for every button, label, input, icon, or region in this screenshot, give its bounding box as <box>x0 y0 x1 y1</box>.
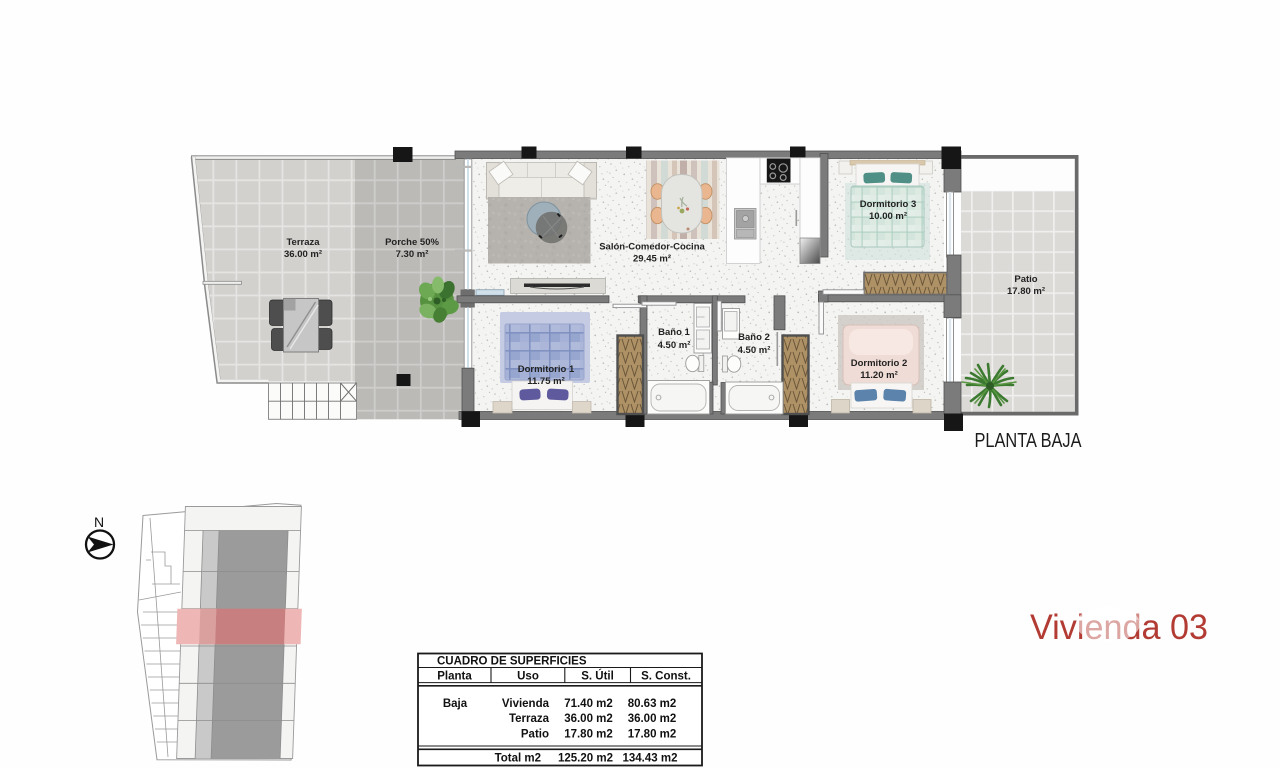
svg-text:Baja: Baja <box>443 698 468 710</box>
svg-text:11.75 m²: 11.75 m² <box>527 376 565 387</box>
svg-text:Baño 1: Baño 1 <box>658 327 690 338</box>
svg-text:Planta: Planta <box>437 671 472 683</box>
svg-text:PLANTA BAJA: PLANTA BAJA <box>975 429 1082 452</box>
svg-text:Salón-Comedor-Cocina: Salón-Comedor-Cocina <box>599 242 705 253</box>
svg-text:4.50 m²: 4.50 m² <box>738 345 771 356</box>
svg-text:11.20 m²: 11.20 m² <box>860 370 898 381</box>
svg-text:Dormitorio 1: Dormitorio 1 <box>518 364 575 375</box>
svg-text:17.80 m2: 17.80 m2 <box>564 729 613 741</box>
svg-text:134.43 m2: 134.43 m2 <box>623 753 678 765</box>
svg-text:CUADRO DE SUPERFICIES: CUADRO DE SUPERFICIES <box>437 656 587 668</box>
svg-text:Porche 50%: Porche 50% <box>385 237 439 248</box>
svg-text:36.00 m²: 36.00 m² <box>284 249 322 260</box>
svg-text:17.80 m2: 17.80 m2 <box>628 729 677 741</box>
svg-text:Dormitorio 2: Dormitorio 2 <box>851 358 907 369</box>
svg-text:80.63 m2: 80.63 m2 <box>628 698 677 710</box>
svg-text:Vivienda: Vivienda <box>502 698 550 710</box>
svg-text:71.40 m2: 71.40 m2 <box>564 698 613 710</box>
svg-text:Patio: Patio <box>521 729 549 741</box>
svg-text:36.00 m2: 36.00 m2 <box>564 713 613 725</box>
svg-text:Uso: Uso <box>517 671 539 683</box>
svg-text:Patio: Patio <box>1014 274 1037 285</box>
svg-text:S. Útil: S. Útil <box>581 670 614 683</box>
svg-text:4.50 m²: 4.50 m² <box>658 340 691 351</box>
svg-text:Dormitorio 3: Dormitorio 3 <box>860 199 916 210</box>
svg-text:Total m2: Total m2 <box>495 753 541 765</box>
svg-text:Terraza: Terraza <box>286 237 320 248</box>
svg-text:125.20 m2: 125.20 m2 <box>558 753 613 765</box>
svg-text:7.30 m²: 7.30 m² <box>396 249 429 260</box>
svg-text:N: N <box>94 514 104 530</box>
svg-text:36.00 m2: 36.00 m2 <box>628 713 677 725</box>
svg-text:Terraza: Terraza <box>509 713 550 725</box>
svg-text:S. Const.: S. Const. <box>641 671 691 683</box>
svg-text:29.45 m²: 29.45 m² <box>633 254 671 265</box>
svg-text:Baño 2: Baño 2 <box>738 332 770 343</box>
svg-text:17.80 m²: 17.80 m² <box>1007 286 1045 297</box>
svg-text:10.00 m²: 10.00 m² <box>869 211 907 222</box>
